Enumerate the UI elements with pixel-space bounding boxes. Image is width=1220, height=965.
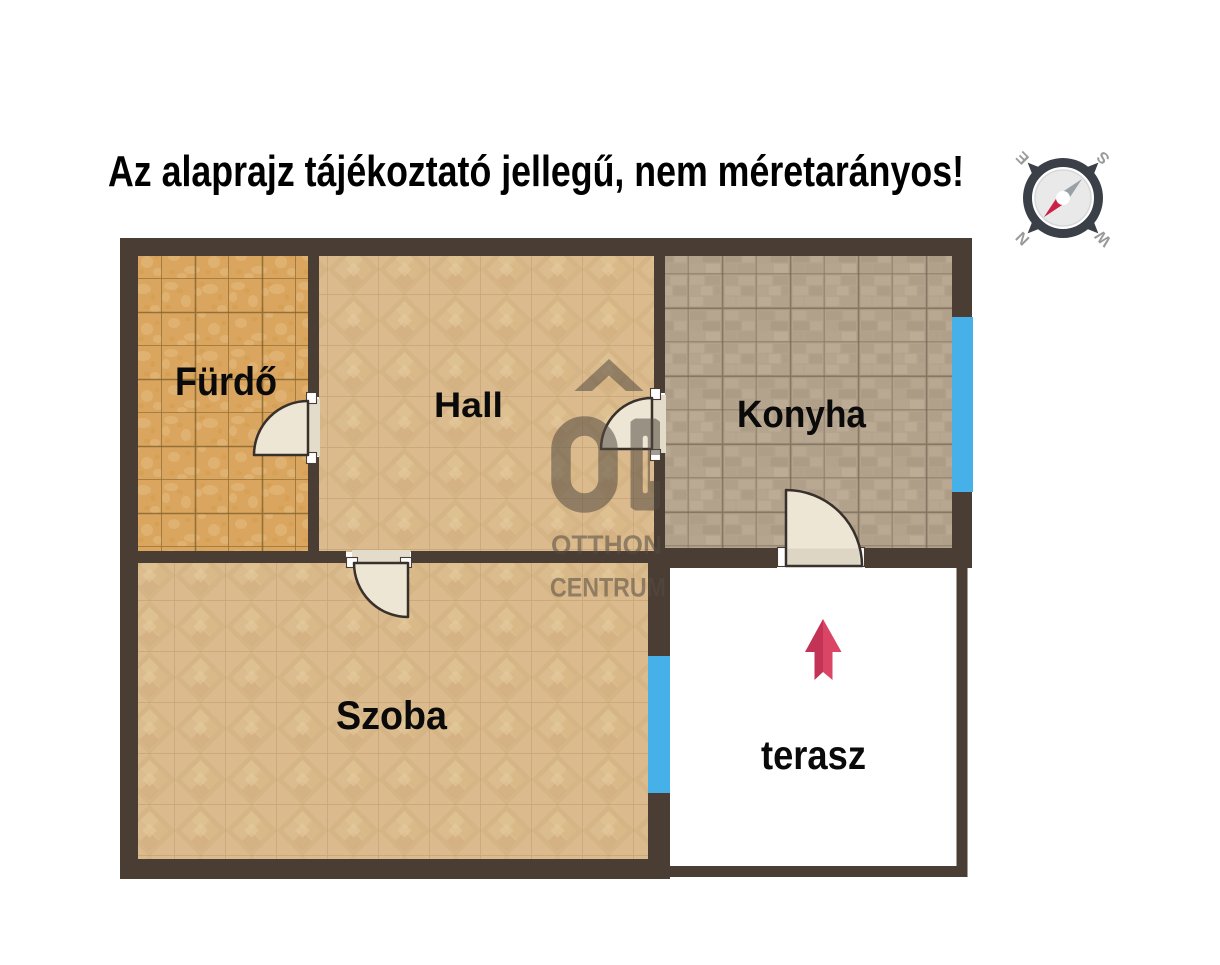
svg-text:Szoba: Szoba bbox=[336, 694, 448, 738]
svg-text:CENTRUM: CENTRUM bbox=[550, 573, 666, 603]
svg-text:Hall: Hall bbox=[434, 386, 503, 425]
svg-text:Konyha: Konyha bbox=[737, 394, 867, 436]
svg-text:OTTHON: OTTHON bbox=[551, 530, 662, 560]
svg-text:Fürdő: Fürdő bbox=[175, 360, 277, 404]
svg-text:terasz: terasz bbox=[761, 732, 866, 778]
svg-text:Az alaprajz tájékoztató jelleg: Az alaprajz tájékoztató jellegű, nem mér… bbox=[108, 147, 964, 196]
